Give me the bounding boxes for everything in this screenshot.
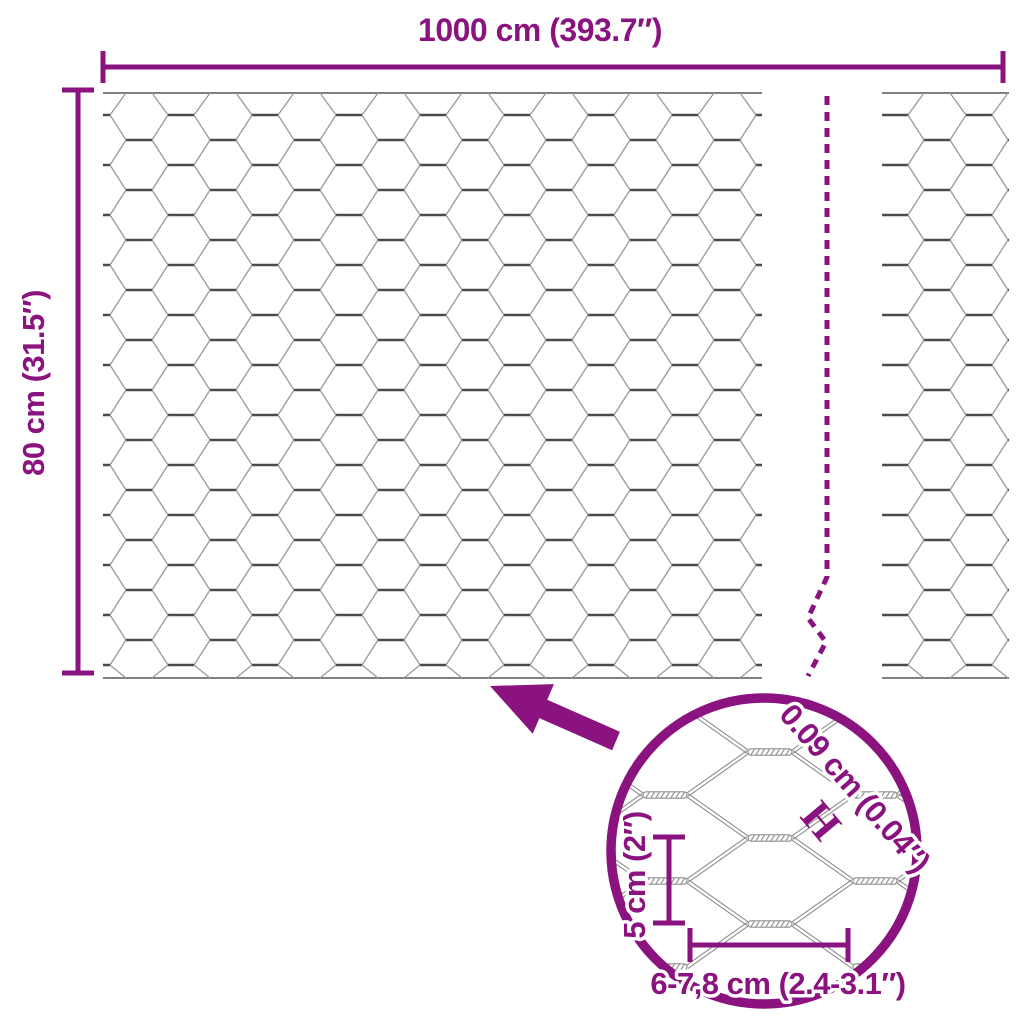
mesh-panel-right xyxy=(698,93,1024,678)
cell-width-label: 6-7,8 cm (2.4-3.1″) xyxy=(650,966,905,1001)
detail-magnifier: 5 cm (2″) 6-7,8 cm (2.4-3.1″) 0.09 cm (0… xyxy=(161,697,1024,1004)
mesh-panel-left xyxy=(0,93,966,678)
height-dimension-label: 80 cm (31.5″) xyxy=(16,290,51,476)
diagram-canvas: 1000 cm (393.7″) 80 cm (31.5″) 5 cm (2″) xyxy=(0,0,1024,1024)
cell-height-label: 5 cm (2″) xyxy=(617,811,652,939)
product-dimension-diagram: 1000 cm (393.7″) 80 cm (31.5″) 5 cm (2″) xyxy=(0,0,1024,1024)
break-dashed-line xyxy=(808,96,827,676)
arrow-icon xyxy=(490,684,620,750)
width-dimension: 1000 cm (393.7″) xyxy=(103,12,1003,83)
height-dimension: 80 cm (31.5″) xyxy=(16,90,94,674)
width-dimension-label: 1000 cm (393.7″) xyxy=(418,12,662,48)
